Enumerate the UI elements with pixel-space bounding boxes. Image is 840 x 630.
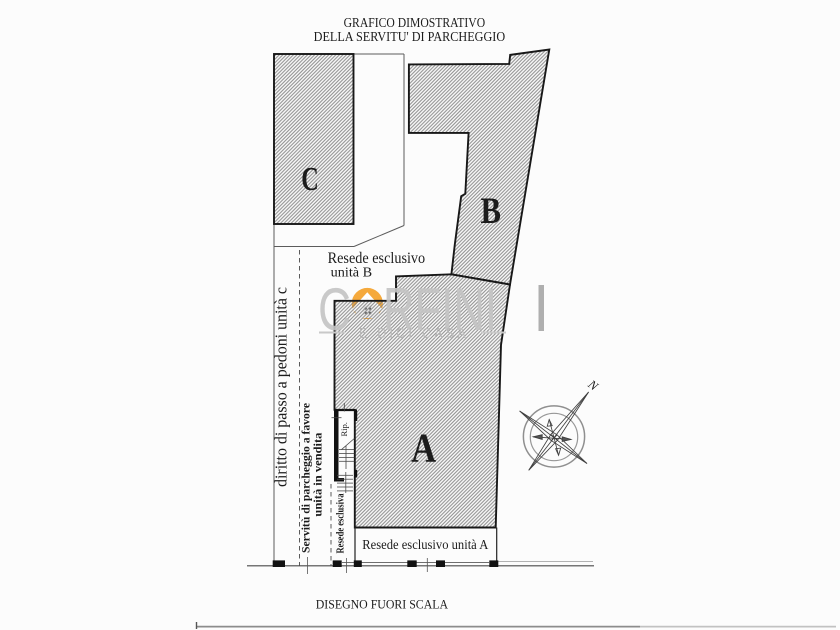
svg-text:unità in vendita: unità in vendita bbox=[311, 433, 325, 517]
svg-text:Resede esclusivo unità A: Resede esclusivo unità A bbox=[362, 538, 489, 553]
svg-text:C: C bbox=[301, 161, 319, 198]
svg-text:DELLA SERVITU' DI PARCHEGGIO: DELLA SERVITU' DI PARCHEGGIO bbox=[314, 29, 506, 44]
svg-text:Rip.: Rip. bbox=[340, 422, 349, 437]
svg-text:DISEGNO FUORI SCALA: DISEGNO FUORI SCALA bbox=[316, 598, 448, 612]
svg-text:B: B bbox=[480, 191, 501, 232]
svg-text:diritto di passo a pedoni unit: diritto di passo a pedoni unità c bbox=[272, 287, 291, 487]
svg-text:GRAFICO DIMOSTRATIVO: GRAFICO DIMOSTRATIVO bbox=[344, 15, 486, 30]
svg-text:E DICI CASA: E DICI CASA bbox=[359, 325, 469, 342]
svg-text:A: A bbox=[411, 424, 436, 470]
svg-text:Resede esclusiva: Resede esclusiva bbox=[335, 493, 346, 554]
